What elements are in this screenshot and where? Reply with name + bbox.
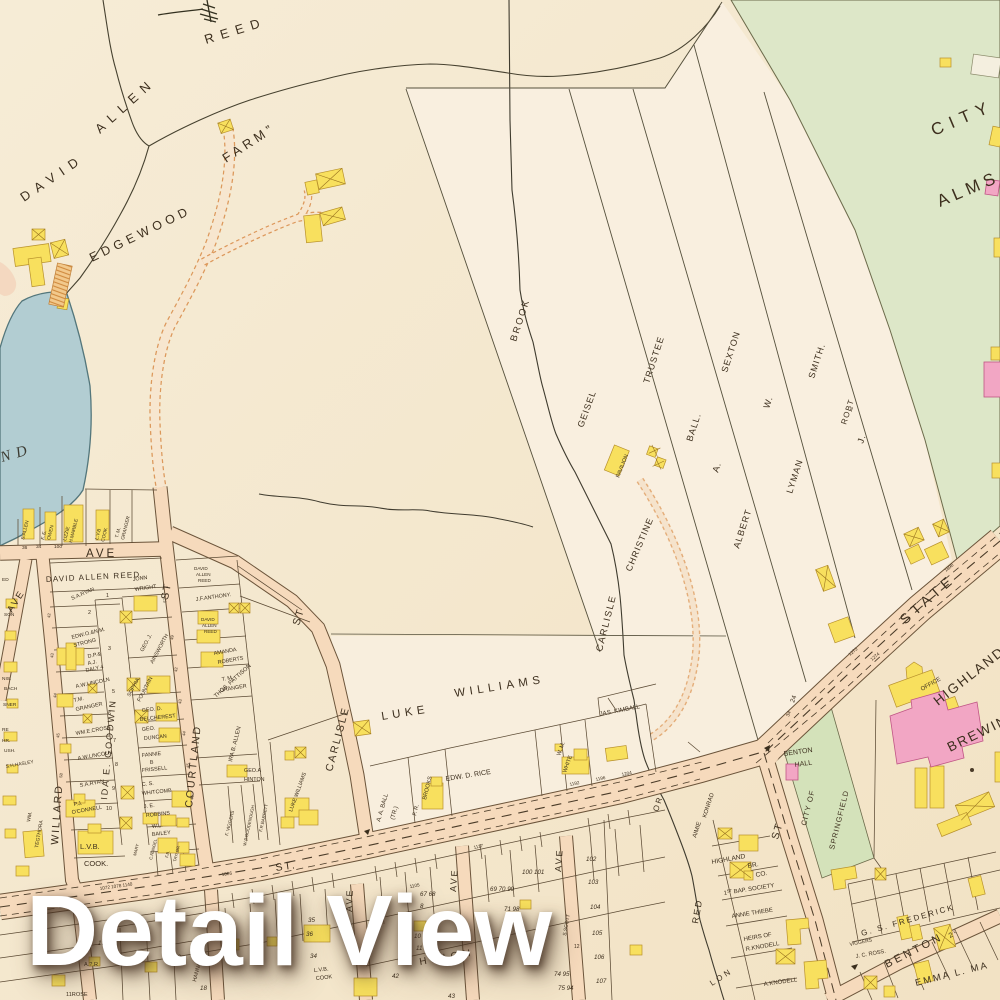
svg-text:AVE: AVE — [448, 868, 460, 892]
svg-text:67 68: 67 68 — [420, 891, 436, 898]
svg-text:SNER: SNER — [3, 702, 17, 708]
svg-text:ALLEN: ALLEN — [202, 623, 217, 628]
svg-text:C. S.: C. S. — [142, 781, 155, 788]
svg-text:10: 10 — [414, 933, 421, 940]
svg-text:13 14: 13 14 — [98, 940, 114, 947]
svg-text:HR.: HR. — [2, 738, 10, 744]
svg-text:REED: REED — [204, 629, 217, 634]
svg-text:ED: ED — [2, 577, 9, 583]
svg-text:RE: RE — [2, 727, 9, 733]
svg-text:1: 1 — [106, 593, 109, 599]
svg-text:106: 106 — [594, 954, 605, 961]
svg-text:DAVID: DAVID — [194, 566, 208, 571]
svg-text:9: 9 — [112, 786, 115, 792]
svg-text:19: 19 — [174, 954, 181, 961]
svg-text:71 98: 71 98 — [504, 906, 520, 913]
svg-text:42: 42 — [392, 973, 399, 980]
svg-text:100 101: 100 101 — [522, 869, 544, 876]
svg-text:AVE: AVE — [553, 848, 565, 872]
svg-text:GEO.A: GEO.A — [244, 768, 261, 774]
svg-text:3: 3 — [108, 646, 111, 652]
svg-text:8: 8 — [115, 762, 118, 768]
svg-text:A.?.R: A.?.R — [84, 962, 98, 968]
svg-text:36: 36 — [22, 545, 28, 551]
svg-text:74 95: 74 95 — [554, 971, 570, 978]
svg-text:75 94: 75 94 — [558, 985, 574, 992]
svg-text:COOK.: COOK. — [84, 859, 108, 868]
svg-text:100: 100 — [54, 544, 62, 550]
svg-text:SON: SON — [4, 612, 15, 618]
svg-text:11: 11 — [416, 945, 422, 952]
svg-text:43: 43 — [448, 993, 455, 1000]
svg-text:11ROSE: 11ROSE — [66, 992, 88, 998]
svg-text:103: 103 — [588, 879, 599, 886]
svg-text:36: 36 — [306, 931, 313, 938]
svg-text:102: 102 — [586, 856, 597, 863]
svg-text:HINTON: HINTON — [244, 777, 265, 783]
svg-text:USH.: USH. — [4, 748, 15, 754]
svg-text:5: 5 — [112, 689, 115, 695]
svg-text:34: 34 — [310, 953, 317, 960]
svg-text:35: 35 — [308, 917, 315, 924]
svg-text:BACH: BACH — [4, 686, 18, 692]
svg-text:W.L.: W.L. — [152, 823, 163, 830]
svg-text:NIS.: NIS. — [2, 676, 11, 682]
svg-text:DAVID: DAVID — [201, 617, 215, 622]
svg-text:7: 7 — [113, 738, 116, 744]
svg-text:J. E.: J. E. — [144, 803, 155, 810]
svg-text:12: 12 — [574, 944, 580, 950]
svg-text:REED: REED — [198, 578, 211, 583]
svg-text:10: 10 — [106, 806, 112, 812]
svg-text:34: 34 — [36, 544, 42, 550]
svg-text:18: 18 — [200, 985, 207, 992]
svg-text:104: 104 — [590, 904, 601, 911]
svg-text:2: 2 — [88, 610, 91, 616]
svg-text:107: 107 — [596, 978, 607, 985]
svg-text:6: 6 — [108, 711, 111, 717]
svg-text:AVE: AVE — [86, 548, 117, 560]
svg-text:8: 8 — [420, 903, 424, 910]
svg-text:AVE: AVE — [344, 888, 355, 912]
svg-text:L.V.B.: L.V.B. — [80, 842, 100, 851]
svg-text:69 70 99: 69 70 99 — [490, 886, 515, 893]
svg-text:105: 105 — [592, 930, 603, 937]
svg-text:ALLEN: ALLEN — [196, 572, 211, 577]
